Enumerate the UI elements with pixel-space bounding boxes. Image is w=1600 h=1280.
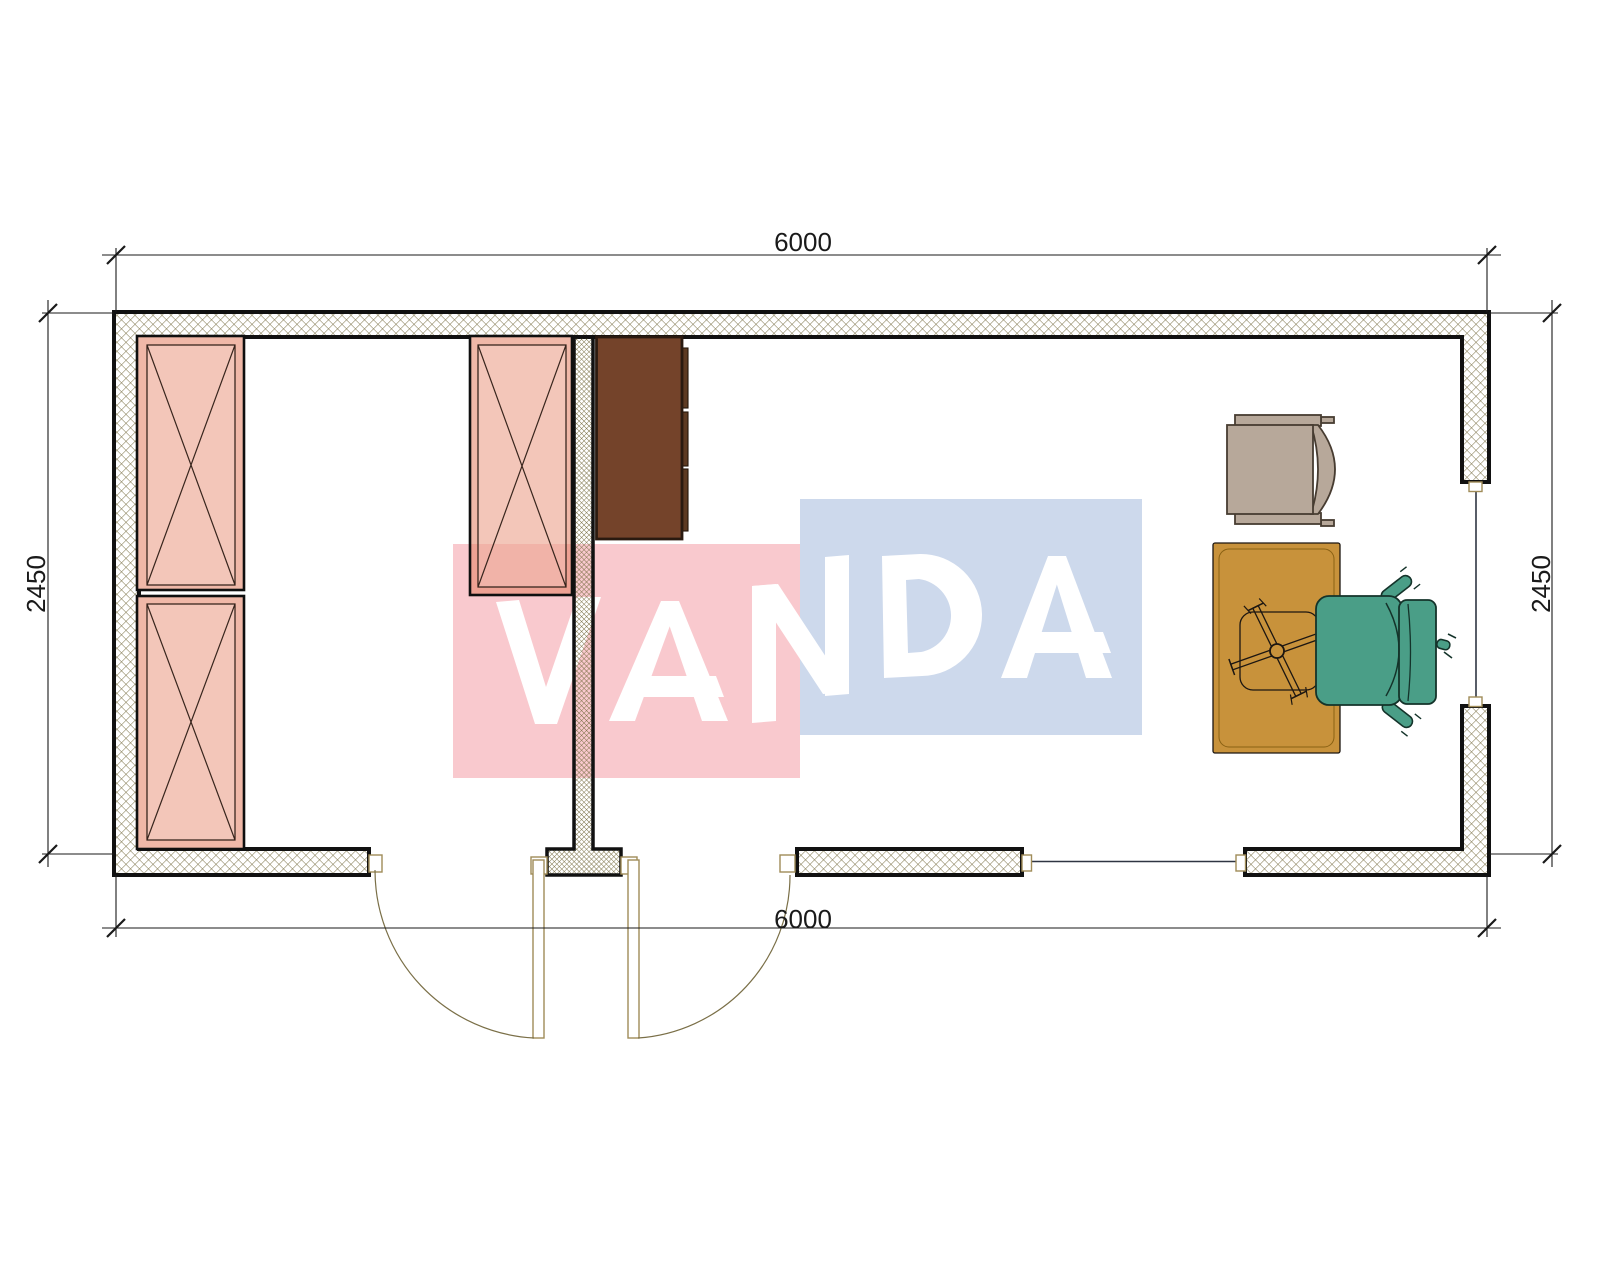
svg-text:2450: 2450: [1526, 555, 1556, 613]
svg-text:6000: 6000: [774, 904, 832, 934]
svg-text:6000: 6000: [774, 227, 832, 257]
svg-text:2450: 2450: [21, 555, 51, 613]
